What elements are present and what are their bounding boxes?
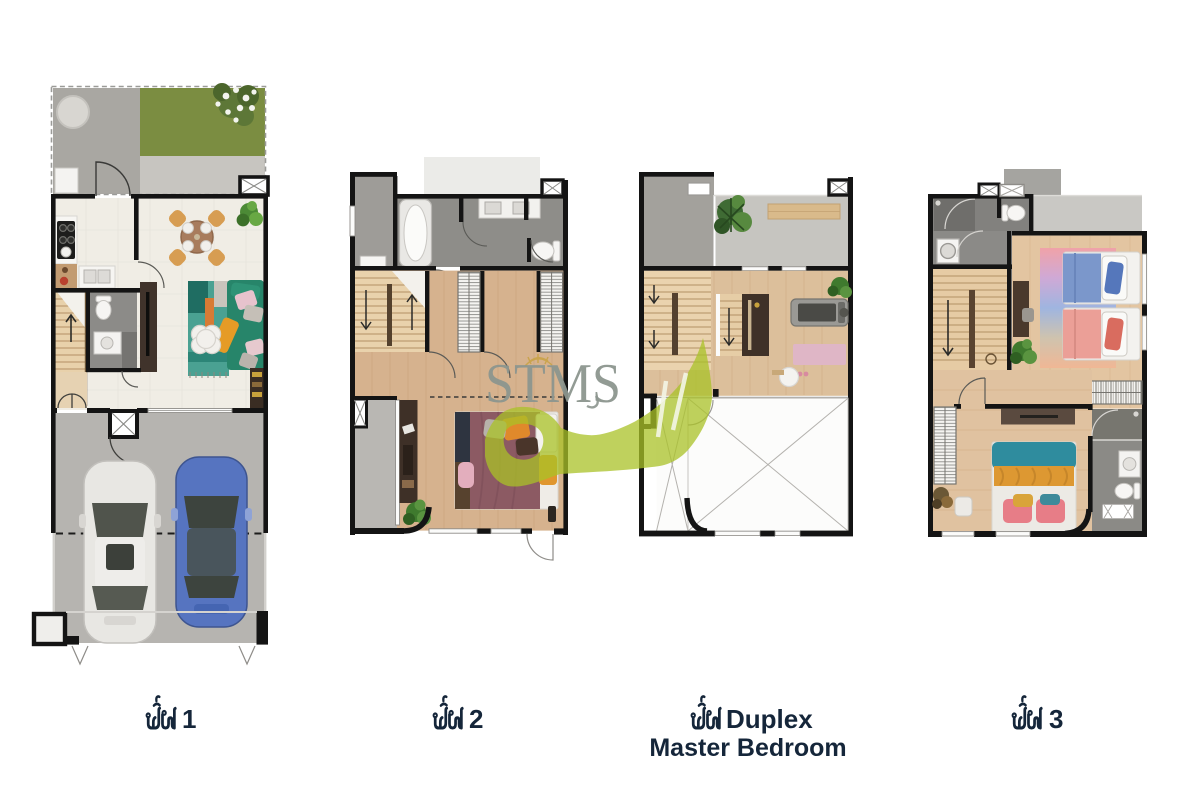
svg-text:1: 1 [182,704,196,734]
svg-text:Duplex: Duplex [726,704,813,734]
svg-text:3: 3 [1049,704,1063,734]
svg-text:Master Bedroom: Master Bedroom [649,734,846,762]
svg-text:2: 2 [469,704,483,734]
svg-text:STMS: STMS [485,353,621,415]
